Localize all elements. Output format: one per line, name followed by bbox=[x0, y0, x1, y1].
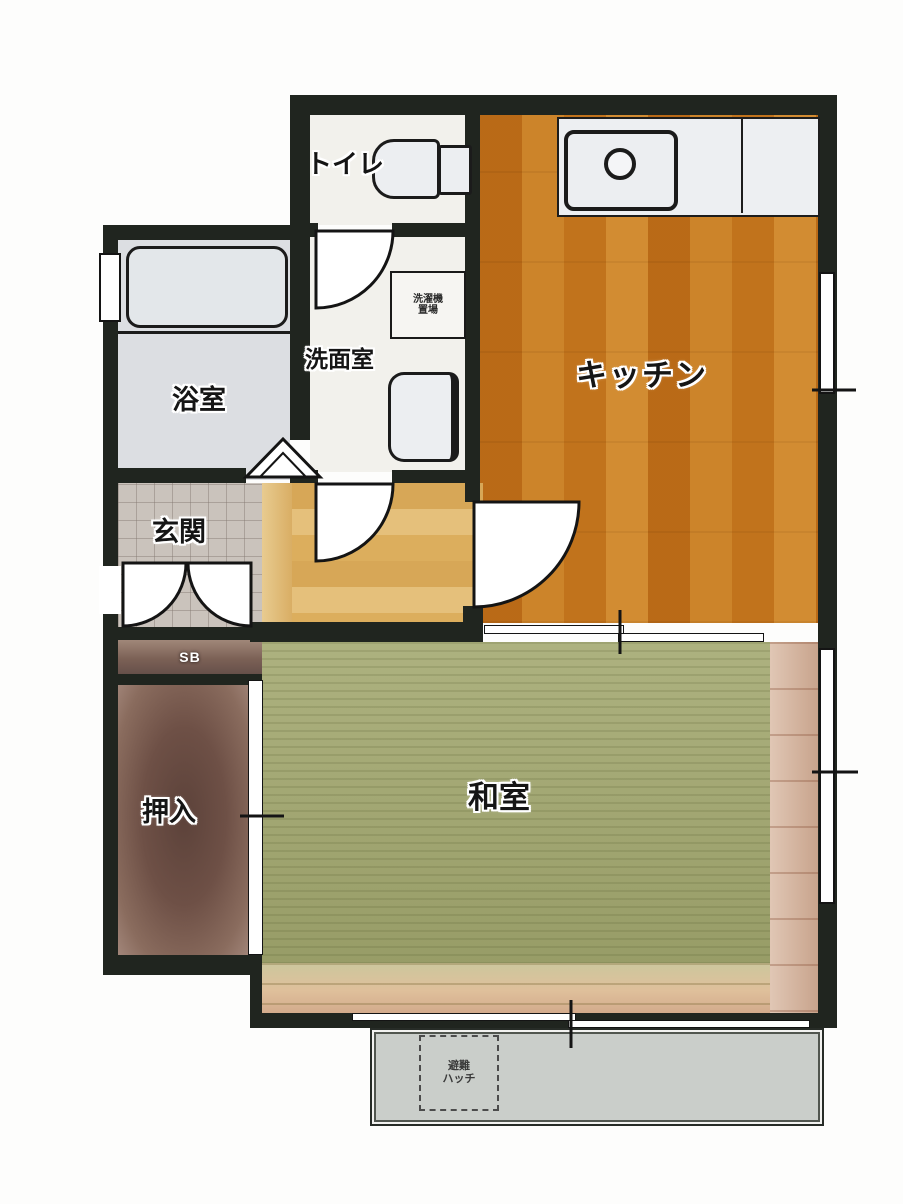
wall-toilet-divider-a bbox=[308, 223, 318, 237]
japanese-room-label: 和室 bbox=[468, 772, 530, 817]
wall-bottom-left bbox=[103, 955, 262, 975]
kitchen-japanese-slider-left bbox=[484, 625, 624, 634]
shoe-box-label: SB bbox=[179, 649, 200, 665]
wall-bath-bottom bbox=[103, 468, 246, 483]
evacuation-hatch-label-line1: 避難 bbox=[448, 1060, 470, 1073]
japanese-room-window bbox=[819, 648, 835, 904]
toilet-tank bbox=[438, 145, 472, 195]
hall-floor bbox=[262, 483, 483, 623]
kitchen-japanese-slider-right bbox=[618, 633, 764, 642]
wall-top bbox=[290, 95, 837, 115]
wall-washroom-bottom-b bbox=[392, 470, 468, 483]
wall-entrance-bottom bbox=[103, 627, 262, 640]
evacuation-hatch-label-line2: ハッチ bbox=[443, 1073, 476, 1086]
closet-sliding-door bbox=[248, 680, 263, 955]
wall-washroom-bottom-a bbox=[290, 470, 318, 483]
balcony-window-right bbox=[568, 1020, 810, 1028]
wall-toilet-divider-b bbox=[392, 223, 468, 237]
closet-label: 押入 bbox=[142, 790, 196, 829]
entrance-door-opening bbox=[99, 566, 121, 614]
bathtub bbox=[126, 246, 288, 328]
balcony-window-left bbox=[352, 1013, 576, 1021]
wall-hall-japanese-divider bbox=[250, 622, 483, 642]
laundry-space-label-line2: 置場 bbox=[418, 305, 438, 317]
wall-bath-top bbox=[103, 225, 305, 240]
bathtub-edge-line bbox=[118, 331, 290, 334]
evacuation-hatch: 避難 ハッチ bbox=[419, 1035, 499, 1111]
laundry-space-box: 洗濯機 置場 bbox=[390, 271, 466, 339]
kitchen-label: キッチン bbox=[576, 350, 708, 395]
faucet-icon bbox=[604, 148, 636, 180]
bathroom-window bbox=[99, 253, 121, 322]
kitchen-counter-divider bbox=[741, 117, 743, 213]
bathroom-label: 浴室 bbox=[172, 378, 226, 417]
japanese-room-bottom-trim bbox=[262, 963, 790, 1013]
laundry-space-label-line1: 洗濯機 bbox=[413, 294, 443, 306]
entrance-step-strip bbox=[262, 483, 292, 623]
kitchen-window bbox=[819, 272, 835, 394]
japanese-room-right-trim bbox=[770, 642, 818, 1013]
entrance-floor bbox=[118, 483, 262, 629]
shoe-box: SB bbox=[118, 640, 262, 674]
wall-shoebox-bottom bbox=[103, 674, 262, 685]
washbasin bbox=[388, 372, 459, 462]
floor-plan: SB 洗濯機 置場 避難 ハッチ bbox=[0, 0, 903, 1204]
toilet-label: トイレ bbox=[306, 144, 384, 181]
washroom-label: 洗面室 bbox=[305, 340, 374, 374]
entrance-label: 玄関 bbox=[152, 510, 206, 549]
